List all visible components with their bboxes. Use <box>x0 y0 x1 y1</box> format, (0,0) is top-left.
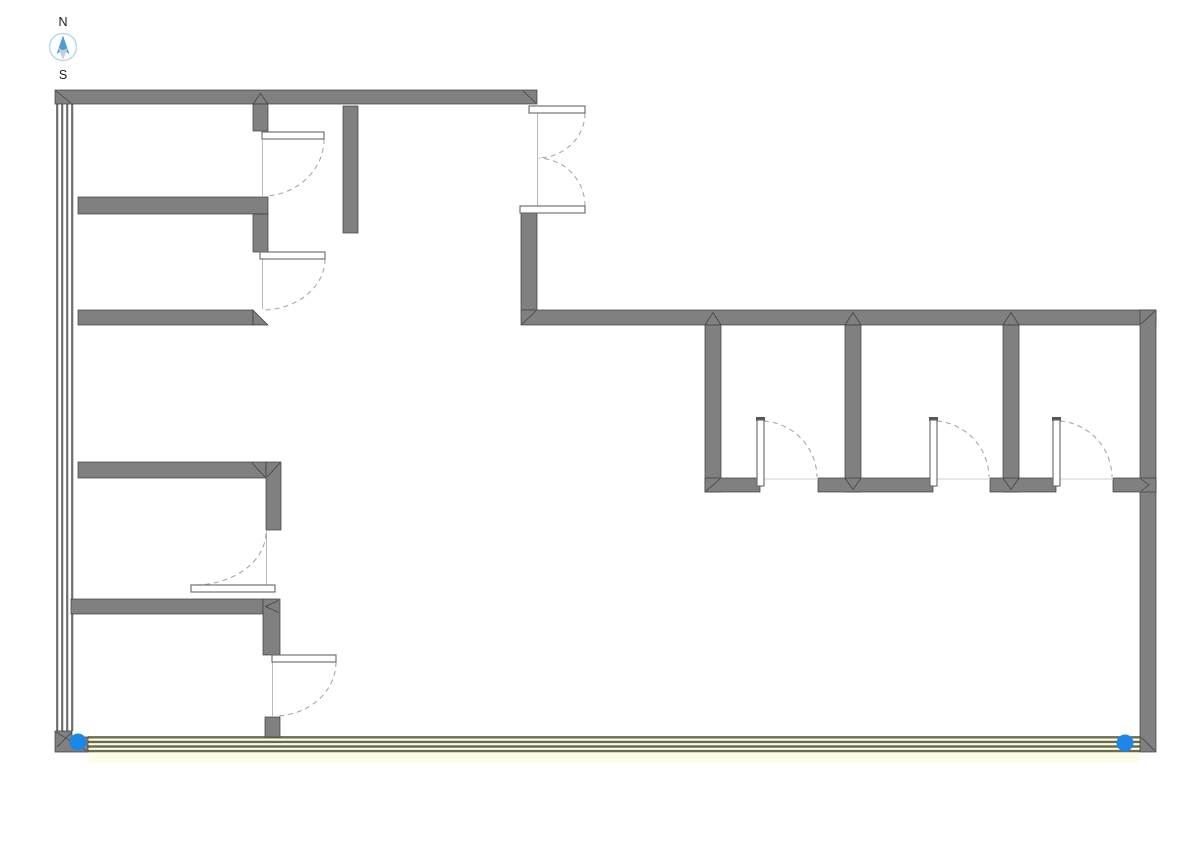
wall-left-2-bevel[interactable] <box>253 310 268 325</box>
wall-stub-bottom[interactable] <box>265 717 280 737</box>
wall-left-3-return[interactable] <box>266 462 281 530</box>
wall-east[interactable] <box>1140 310 1156 752</box>
door-leaf <box>262 132 324 139</box>
door-room-3[interactable] <box>1052 417 1113 486</box>
wall-rooms-bottom-b[interactable] <box>818 478 933 492</box>
double-door-north[interactable] <box>520 106 585 213</box>
door-leaf-bottom <box>520 206 585 213</box>
floor-plan-editor-canvas: N S <box>0 0 1191 842</box>
door-room-2[interactable] <box>929 417 990 486</box>
wall-left-4-return[interactable] <box>263 599 280 655</box>
wall-left-3[interactable] <box>78 462 266 478</box>
door-leaf <box>191 585 275 592</box>
wall-corridor-vertical[interactable] <box>521 210 537 310</box>
door-lower-left-2[interactable] <box>272 655 336 716</box>
selected-south-window-wall[interactable] <box>88 736 1140 763</box>
door-leaf <box>930 420 937 486</box>
wall-room-divider-1[interactable] <box>705 325 721 492</box>
door-leaf-top <box>529 106 585 113</box>
selection-glow <box>88 752 1140 763</box>
selection-handle-east[interactable] <box>1117 735 1134 752</box>
wall-rooms-bottom-c[interactable] <box>990 478 1056 492</box>
door-leaf <box>260 252 325 259</box>
wall-room-divider-2[interactable] <box>845 325 861 492</box>
compass: N S <box>50 15 77 82</box>
floor-plan-drawing: N S <box>0 0 1191 842</box>
door-leaf <box>757 420 764 486</box>
compass-north-label: N <box>58 15 67 29</box>
selection-handle-west[interactable] <box>70 734 87 751</box>
wall-room-divider-3[interactable] <box>1003 325 1019 492</box>
compass-south-label: S <box>59 68 67 82</box>
door-lower-left-1[interactable] <box>191 531 275 592</box>
wall-left-4[interactable] <box>71 599 263 614</box>
west-window-wall[interactable] <box>57 104 72 731</box>
wall-corridor-horizontal[interactable] <box>521 310 1156 325</box>
door-mid-left[interactable] <box>260 252 325 310</box>
wall-stub-top[interactable] <box>253 104 268 131</box>
door-leaf <box>272 655 336 662</box>
wall-miter-marks <box>56 91 1155 751</box>
door-room-1[interactable] <box>756 417 818 486</box>
wall-left-1[interactable] <box>78 197 268 214</box>
walls <box>55 90 1156 752</box>
wall-freestanding[interactable] <box>343 106 358 233</box>
wall-north[interactable] <box>55 90 537 104</box>
door-upper-left[interactable] <box>262 132 324 196</box>
door-leaf <box>1053 420 1060 486</box>
wall-left-2[interactable] <box>78 310 253 325</box>
wall-left-1-return[interactable] <box>253 214 268 252</box>
